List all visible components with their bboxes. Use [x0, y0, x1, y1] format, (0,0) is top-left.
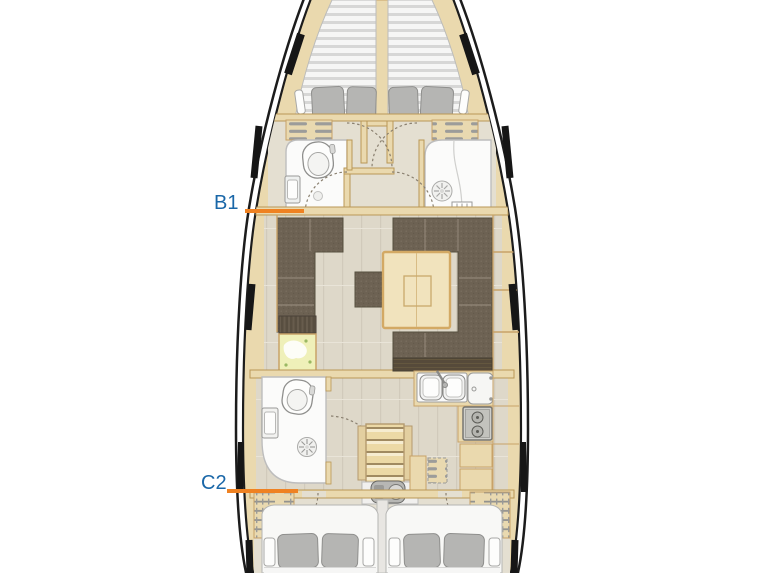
- shower-drain-icon: [432, 181, 452, 201]
- drain-icon: [314, 192, 323, 201]
- nav-desk: [410, 456, 426, 490]
- bedside-shelf: [264, 538, 275, 566]
- aft-cabin-right: [386, 505, 502, 573]
- stove-icon: [463, 407, 492, 440]
- blanket-stripes: [388, 567, 500, 573]
- aft-cabin-door-gap-right: [438, 491, 462, 498]
- yacht-layout-diagram: B1 C2: [0, 0, 764, 573]
- b1-pointer-line: [245, 209, 304, 213]
- pillow: [443, 533, 484, 568]
- pillow: [277, 533, 318, 568]
- vent-locker-right: [432, 120, 478, 140]
- blanket-stripes: [264, 567, 376, 573]
- saloon-table: [383, 252, 450, 328]
- sink-icon: [285, 176, 300, 203]
- shower-drain-icon: [298, 438, 317, 457]
- bedside-shelf: [363, 538, 374, 566]
- pillow: [403, 533, 440, 568]
- dark-counter: [393, 358, 492, 371]
- double-sink-icon: [417, 371, 467, 402]
- forward-shower-right: [425, 140, 491, 212]
- pillow: [321, 533, 358, 568]
- saloon-pouf: [355, 272, 382, 307]
- fridge-icon: [468, 373, 493, 404]
- forward-head-left: [285, 140, 347, 212]
- bedside-shelf: [489, 538, 500, 566]
- aft-cabin-door-gap-left: [302, 491, 326, 498]
- sink-icon: [262, 408, 278, 438]
- companionway-steps: [366, 424, 404, 482]
- cabin-label-b1: B1: [214, 193, 238, 214]
- boat-floorplan-svg: [0, 0, 764, 573]
- c2-pointer-line: [227, 489, 298, 493]
- bedside-shelf: [389, 538, 400, 566]
- head-door-frame-top: [326, 377, 331, 391]
- chart-table-map: [279, 334, 316, 372]
- vent-locker-left: [286, 120, 332, 140]
- stair-rail-left: [358, 426, 366, 480]
- aft-cabin-left: [262, 505, 378, 573]
- saloon: [277, 215, 519, 377]
- head-door-frame-bottom: [326, 462, 331, 484]
- vberth-center-divider: [376, 0, 388, 118]
- cabin-label-c2: C2: [201, 473, 227, 494]
- instrument-panel: [279, 316, 316, 333]
- nav-seat: [428, 458, 447, 483]
